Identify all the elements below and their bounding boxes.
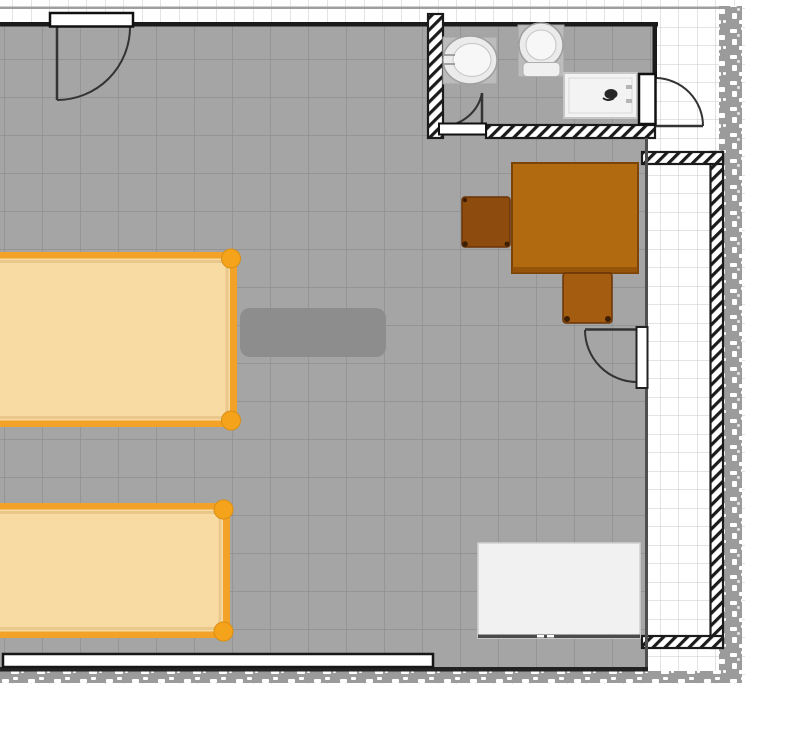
bed-bottom-post-ne <box>214 500 233 519</box>
toilet[interactable] <box>518 23 564 77</box>
chair-left-seat <box>462 197 510 247</box>
shower-drain <box>605 89 618 99</box>
chair-bottom-seat <box>563 273 612 323</box>
bed-top-mattress <box>0 259 230 421</box>
bed-top-post-ne <box>222 249 241 268</box>
shower-handle-mark2 <box>626 99 632 103</box>
bed-bottom-mattress <box>0 510 223 632</box>
chair-left-foot <box>462 241 468 247</box>
shower[interactable] <box>564 73 637 118</box>
desk-top <box>512 163 638 273</box>
outer-top-line <box>0 7 742 10</box>
door-bathroom-inner-leaf <box>439 124 486 135</box>
desk-edge-bottom <box>512 267 638 273</box>
floor-plan-canvas <box>0 0 800 734</box>
rug[interactable] <box>240 308 386 357</box>
washbasin[interactable] <box>443 36 497 84</box>
wall-corridor-top <box>642 152 723 164</box>
bed-bottom[interactable] <box>0 500 233 641</box>
outer-wall-bottom-texture <box>0 671 742 683</box>
desk[interactable] <box>512 163 638 273</box>
washbasin-bowl-inner <box>453 44 491 77</box>
dresser-front-edge <box>478 635 640 639</box>
shower-handle-mark <box>626 85 632 89</box>
dresser-handle2 <box>547 635 554 638</box>
shower-tray <box>564 73 637 118</box>
bed-top-post-se <box>222 411 241 430</box>
wall-bathroom-bottom <box>486 125 655 138</box>
toilet-bowl-inner <box>526 30 556 60</box>
door-bathroom-right-leaf <box>639 74 656 124</box>
wall-corridor-right <box>711 152 724 648</box>
chair-left[interactable] <box>462 197 510 247</box>
chair-bottom-foot2 <box>605 316 611 322</box>
dresser-handle <box>537 635 544 638</box>
chair-bottom-foot <box>564 316 570 322</box>
chair-left-foot2 <box>505 242 510 247</box>
wall-corridor-bottom <box>642 636 723 648</box>
bed-bottom-post-se <box>214 622 233 641</box>
door-top-leaf <box>50 13 133 27</box>
toilet-tank <box>523 63 560 77</box>
door-room-right-leaf <box>637 327 648 388</box>
window-bottom[interactable] <box>3 654 433 667</box>
chair-bottom[interactable] <box>563 273 612 323</box>
chair-left-foot3 <box>463 198 467 202</box>
wall-bathroom-left <box>428 14 443 138</box>
dresser-top <box>478 543 640 638</box>
wall-room-corridor-divider <box>645 138 648 670</box>
wall-bathroom-right-corner <box>653 22 658 77</box>
bed-top[interactable] <box>0 249 241 430</box>
dresser[interactable] <box>478 543 640 638</box>
